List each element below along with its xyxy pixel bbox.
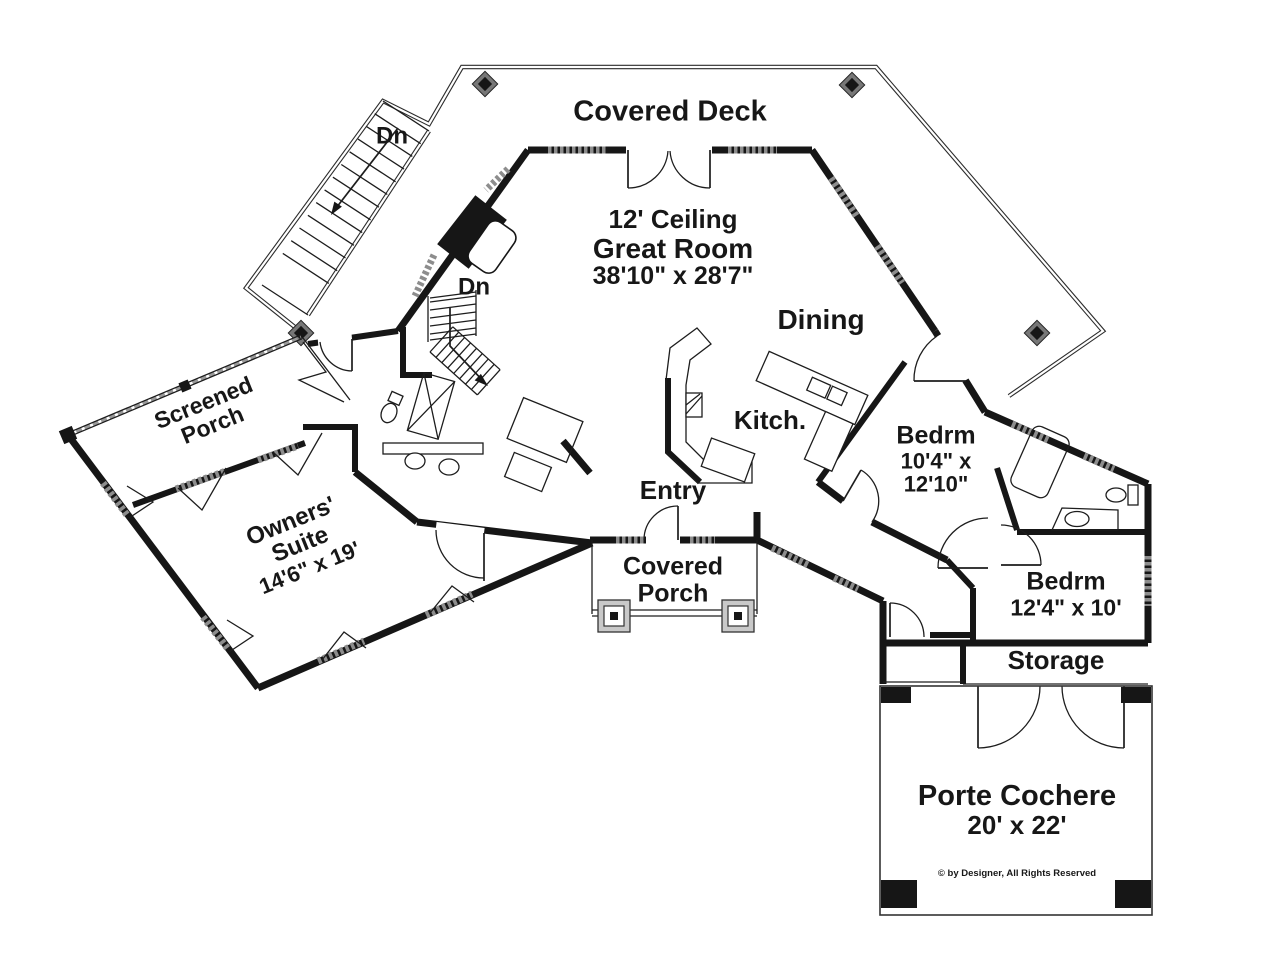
label-great-room: 12' Ceiling Great Room 38'10" x 28'7" (593, 206, 754, 290)
interior-stairs (428, 290, 500, 395)
sink-icon (405, 453, 425, 469)
great-room-name: Great Room (593, 234, 754, 264)
label-covered-porch: Covered Porch (623, 554, 723, 607)
bedroom-bath (1008, 424, 1138, 530)
bedroom-1-name: Bedrm (896, 422, 975, 449)
toilet-icon (1106, 488, 1126, 502)
great-room-dims: 38'10" x 28'7" (593, 263, 754, 290)
sink-icon (1065, 512, 1089, 527)
floor-plan-page: Covered Deck Dn Dn 12' Ceiling Great Roo… (0, 0, 1280, 960)
label-copyright: © by Designer, All Rights Reserved (938, 869, 1096, 879)
bedroom-1-dims2: 12'10" (896, 472, 975, 495)
label-storage: Storage (1008, 647, 1105, 675)
label-stair-down-interior: Dn (458, 274, 490, 299)
porte-cochere-name: Porte Cochere (918, 781, 1116, 812)
toilet-icon (378, 391, 404, 425)
label-covered-deck: Covered Deck (573, 97, 766, 128)
porte-cochere-dims: 20' x 22' (918, 812, 1116, 840)
bedroom-2-name: Bedrm (1010, 569, 1121, 596)
label-dining: Dining (777, 305, 864, 335)
sink-icon (439, 459, 459, 475)
label-kitchen: Kitch. (734, 407, 806, 435)
covered-porch-line2: Porch (623, 580, 723, 607)
label-bedroom-2: Bedrm 12'4" x 10' (1010, 569, 1121, 620)
porte-cochere-post (881, 880, 917, 908)
great-room-ceiling: 12' Ceiling (593, 206, 754, 234)
covered-porch-line1: Covered (623, 554, 723, 581)
label-porte-cochere: Porte Cochere 20' x 22' (918, 781, 1116, 839)
bedroom-2-dims: 12'4" x 10' (1010, 595, 1121, 619)
bedroom-1-dims1: 10'4" x (896, 449, 975, 472)
french-doors (628, 150, 710, 188)
porch-column (722, 600, 754, 632)
label-stair-down-exterior: Dn (376, 123, 408, 148)
porte-cochere-post (1115, 880, 1151, 908)
label-entry: Entry (640, 477, 706, 505)
label-bedroom-1: Bedrm 10'4" x 12'10" (896, 422, 975, 495)
